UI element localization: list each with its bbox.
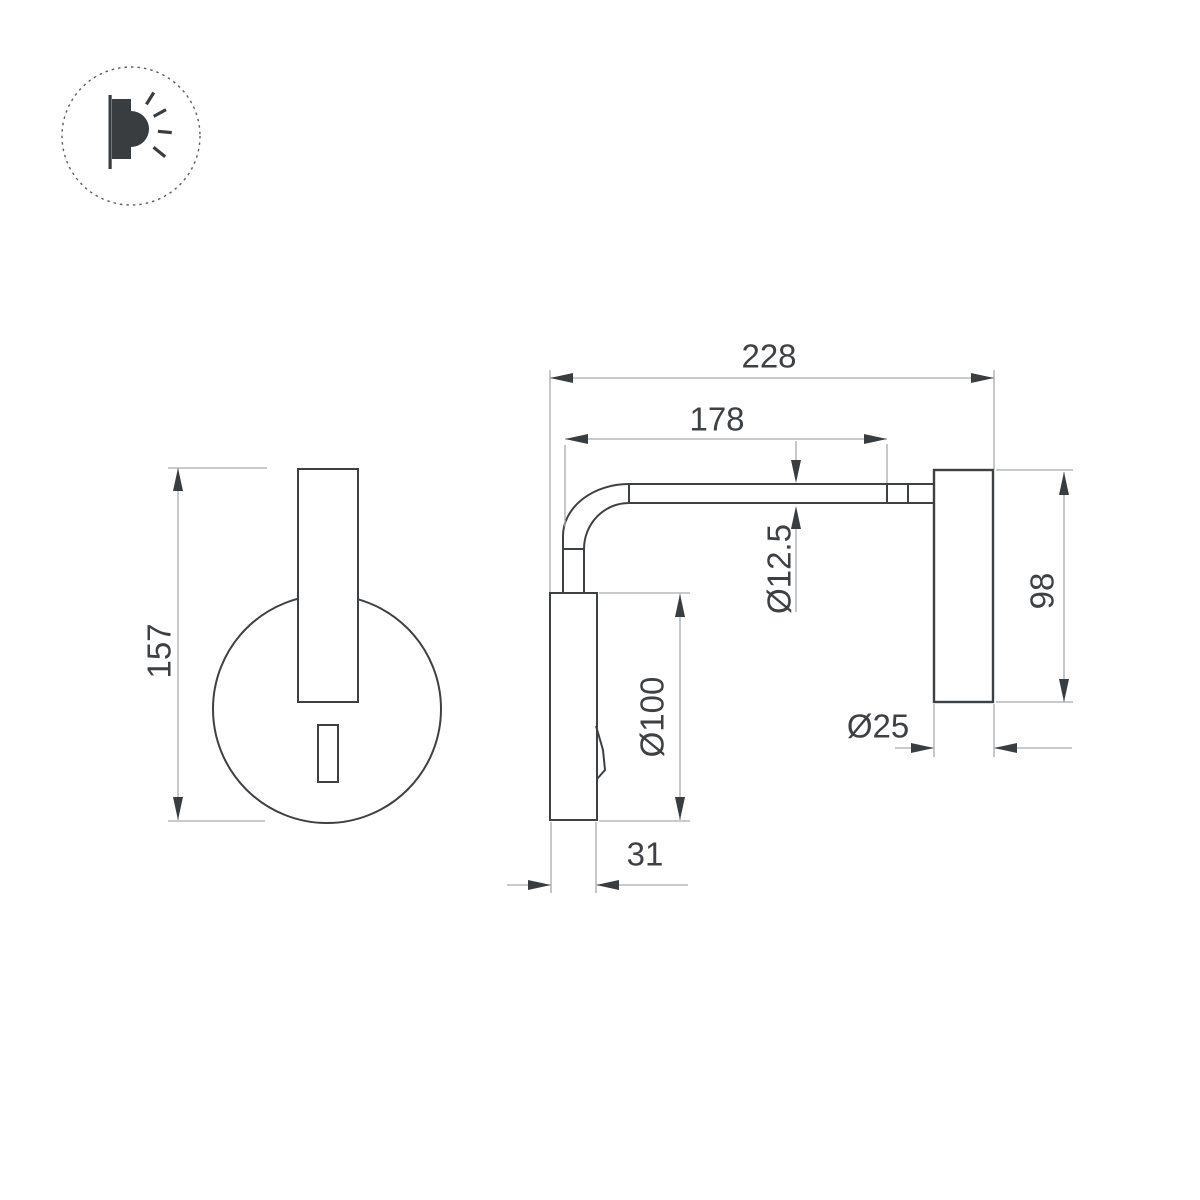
- arrowhead-left: [565, 434, 588, 444]
- dim-label-arm-length: 178: [689, 401, 744, 438]
- drawing-canvas: 157 228: [0, 0, 1200, 1200]
- light-ray-icon: [146, 93, 153, 105]
- arrowhead-down: [675, 797, 685, 820]
- lamp-wall-line: [109, 95, 112, 169]
- arrowhead-right: [911, 743, 934, 753]
- light-ray-icon: [158, 131, 172, 132]
- arm-tube-inner: [584, 503, 934, 593]
- front-view: 157: [141, 468, 442, 823]
- lamp-head-side: [550, 593, 597, 820]
- arrowhead-down: [173, 797, 183, 820]
- lamp-body-mark: [112, 99, 131, 159]
- dim-label-backplate-height: 98: [1024, 573, 1061, 610]
- arrowhead-right: [971, 373, 994, 383]
- backplate-side: [934, 470, 993, 702]
- dim-98: 98: [996, 470, 1073, 702]
- light-ray-icon: [154, 147, 166, 157]
- light-ray-icon: [154, 110, 166, 117]
- dim-label-tube-diameter: Ø12.5: [761, 524, 798, 614]
- arrowhead-left: [596, 880, 619, 890]
- dim-label-height: 157: [141, 623, 178, 678]
- arrowhead-left: [994, 743, 1017, 753]
- arm-tube-outer: [563, 484, 934, 593]
- dim-tube-diameter: Ø12.5: [761, 441, 802, 614]
- dim-label-total-depth: 228: [741, 338, 796, 375]
- arrowhead-up: [675, 594, 685, 617]
- dim-backplate-depth: Ø25: [847, 704, 1072, 757]
- brand-logo: [62, 67, 200, 205]
- lamp-body-front: [298, 469, 358, 702]
- dim-label-backplate-depth: Ø25: [847, 708, 909, 745]
- dim-31: 31: [507, 822, 688, 893]
- dim-head-length: Ø100: [599, 593, 690, 821]
- dim-label-head-width: 31: [627, 836, 664, 873]
- arrowhead-right: [864, 434, 887, 444]
- side-view: 228 178 Ø12.5: [507, 338, 1073, 894]
- dim-label-head-length: Ø100: [634, 677, 671, 758]
- switch-front: [318, 725, 338, 782]
- arrowhead-left: [550, 373, 573, 383]
- arrowhead-up: [173, 468, 183, 491]
- arrowhead-right: [528, 880, 551, 890]
- wall-lamp-shining-icon: [109, 95, 150, 169]
- light-rays: [146, 93, 171, 157]
- dim-178: 178: [565, 401, 887, 528]
- arrowhead-down: [791, 460, 801, 483]
- arrowhead-up: [1059, 472, 1069, 495]
- lamp-lens-mark: [131, 111, 149, 147]
- arrowhead-down: [1059, 679, 1069, 702]
- technical-drawing-page: 157 228: [0, 0, 1200, 1200]
